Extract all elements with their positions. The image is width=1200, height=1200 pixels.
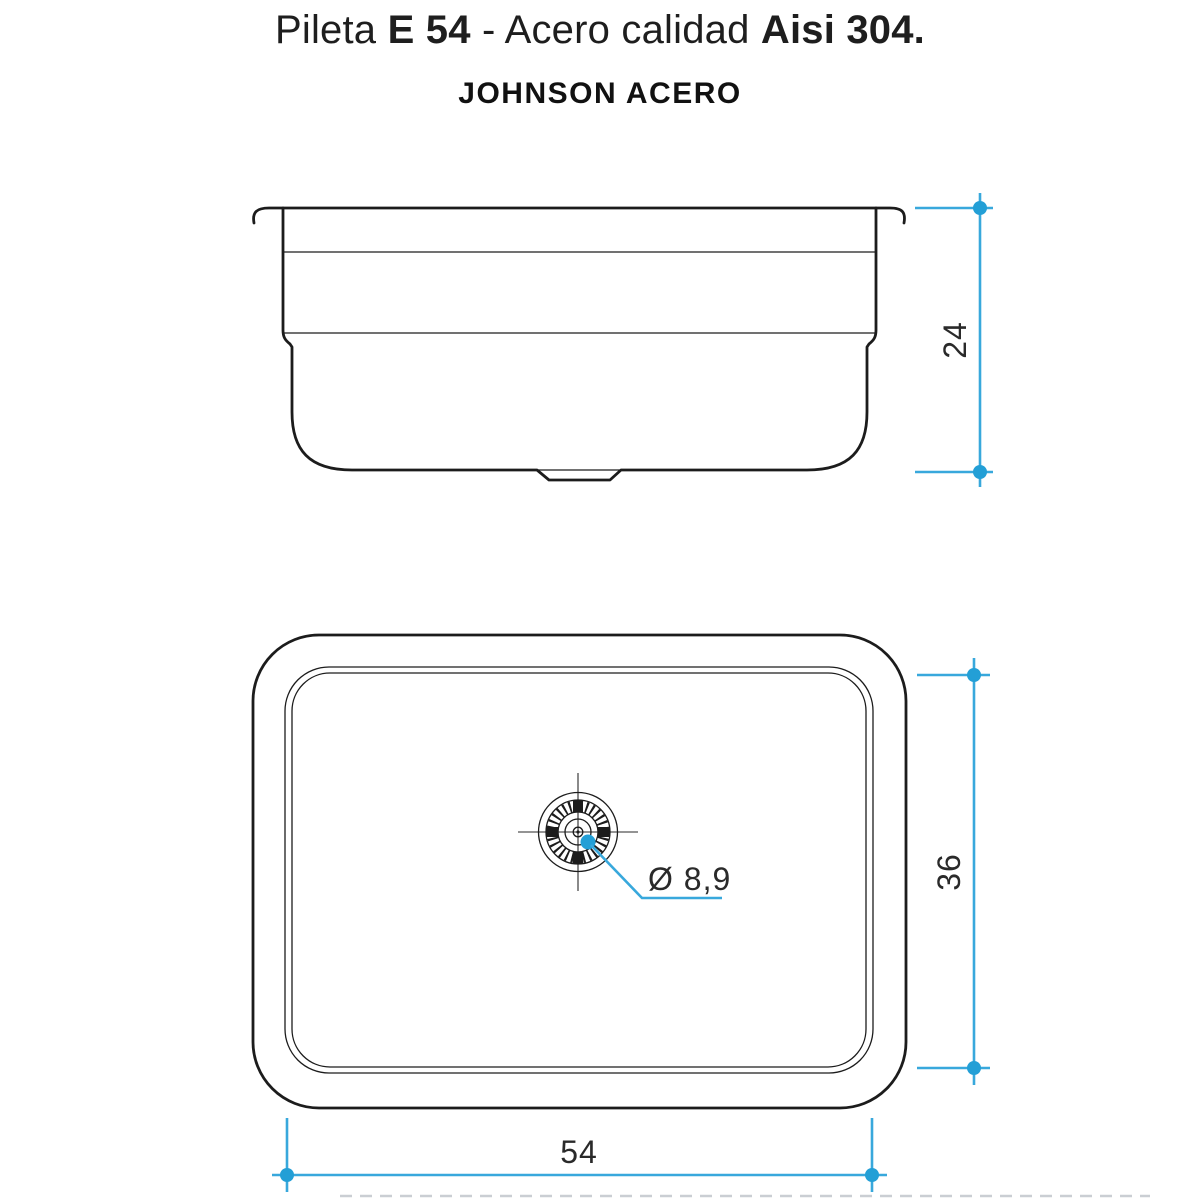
drain-tab-south (573, 852, 583, 864)
drain-tab-west (546, 827, 558, 837)
height-value: 36 (931, 853, 967, 891)
height-dot-top (967, 668, 981, 682)
drain-screw-center (576, 830, 579, 833)
depth-dot-top (973, 201, 987, 215)
top-view-rim-outer (285, 667, 873, 1073)
dimension-depth: 24 (915, 193, 993, 487)
side-view-rim (254, 208, 905, 223)
top-view-rim-inner (292, 673, 866, 1067)
side-view-body (283, 208, 876, 480)
dimension-width: 54 (272, 1118, 887, 1192)
width-dot-right (865, 1168, 879, 1182)
drain-tab-north (573, 800, 583, 812)
width-dot-left (280, 1168, 294, 1182)
technical-drawing: 24 (0, 0, 1200, 1200)
depth-value: 24 (937, 321, 973, 359)
drain-tab-east (598, 827, 610, 837)
depth-dot-bottom (973, 465, 987, 479)
top-view: Ø 8,9 (253, 635, 906, 1108)
width-value: 54 (560, 1134, 598, 1170)
drain-diameter-value: Ø 8,9 (648, 861, 731, 897)
side-view (254, 208, 905, 480)
product-sheet: Pileta E 54 - Acero calidad Aisi 304. JO… (0, 0, 1200, 1200)
dimension-height: 36 (917, 658, 990, 1085)
height-dot-bottom (967, 1061, 981, 1075)
